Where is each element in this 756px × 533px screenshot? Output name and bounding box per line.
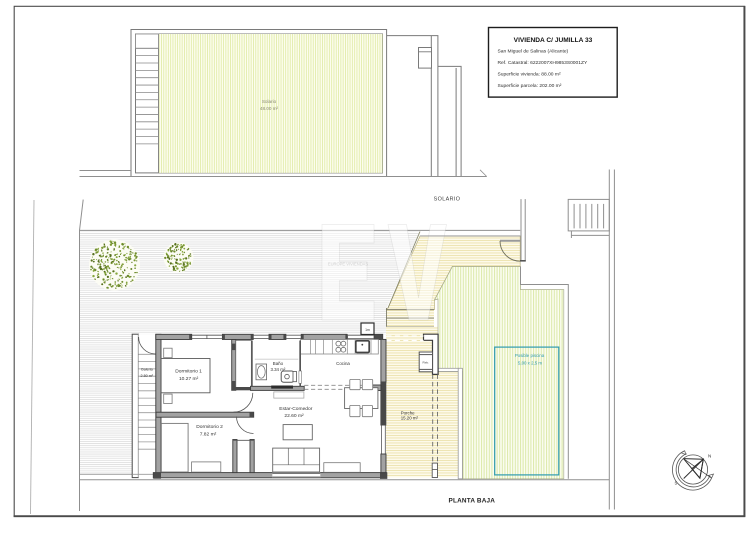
svg-text:15.20 m²: 15.20 m²: [401, 416, 419, 421]
svg-text:Ref. Catastral: 6222007XH9853S: Ref. Catastral: 6222007XH9853S0001ZY: [498, 60, 588, 66]
svg-text:Cocina: Cocina: [336, 361, 350, 366]
svg-text:7.82 m²: 7.82 m²: [200, 431, 217, 437]
svg-text:Solario: Solario: [262, 99, 277, 104]
svg-text:VIVIENDA C/ JUMILLA 33: VIVIENDA C/ JUMILLA 33: [514, 37, 593, 44]
svg-text:Baño: Baño: [273, 361, 284, 366]
svg-text:48.00 m²: 48.00 m²: [260, 106, 279, 111]
svg-text:Superficie parcela: 202.00 m²: Superficie parcela: 202.00 m²: [498, 83, 562, 89]
svg-text:SOLARIO: SOLARIO: [434, 197, 461, 203]
svg-text:Posible piscina: Posible piscina: [515, 353, 545, 358]
svg-text:Dormitorio 2: Dormitorio 2: [196, 424, 223, 430]
svg-text:Reb.: Reb.: [423, 361, 430, 365]
svg-text:22.60 m²: 22.60 m²: [284, 413, 304, 419]
svg-text:Estar-Comedor: Estar-Comedor: [279, 406, 313, 412]
svg-text:3.34 m²: 3.34 m²: [270, 367, 285, 372]
svg-text:S: S: [675, 481, 678, 486]
svg-text:Galeria: Galeria: [141, 368, 154, 372]
svg-text:PLANTA BAJA: PLANTA BAJA: [449, 498, 496, 505]
svg-text:5,00 x 2,5 m: 5,00 x 2,5 m: [518, 361, 543, 366]
svg-text:Dormitorio 1: Dormitorio 1: [175, 368, 202, 374]
svg-text:EUROPE VIVIENDAS: EUROPE VIVIENDAS: [328, 262, 369, 267]
svg-text:N: N: [708, 454, 711, 459]
svg-text:10.27 m²: 10.27 m²: [179, 376, 199, 382]
svg-text:Superficie vivienda: 88.00 m²: Superficie vivienda: 88.00 m²: [498, 72, 561, 78]
svg-text:1m: 1m: [365, 328, 370, 332]
svg-text:San Miguel de Salinas (Alicant: San Miguel de Salinas (Alicante): [498, 48, 569, 54]
svg-text:2.50 m²: 2.50 m²: [141, 374, 154, 378]
